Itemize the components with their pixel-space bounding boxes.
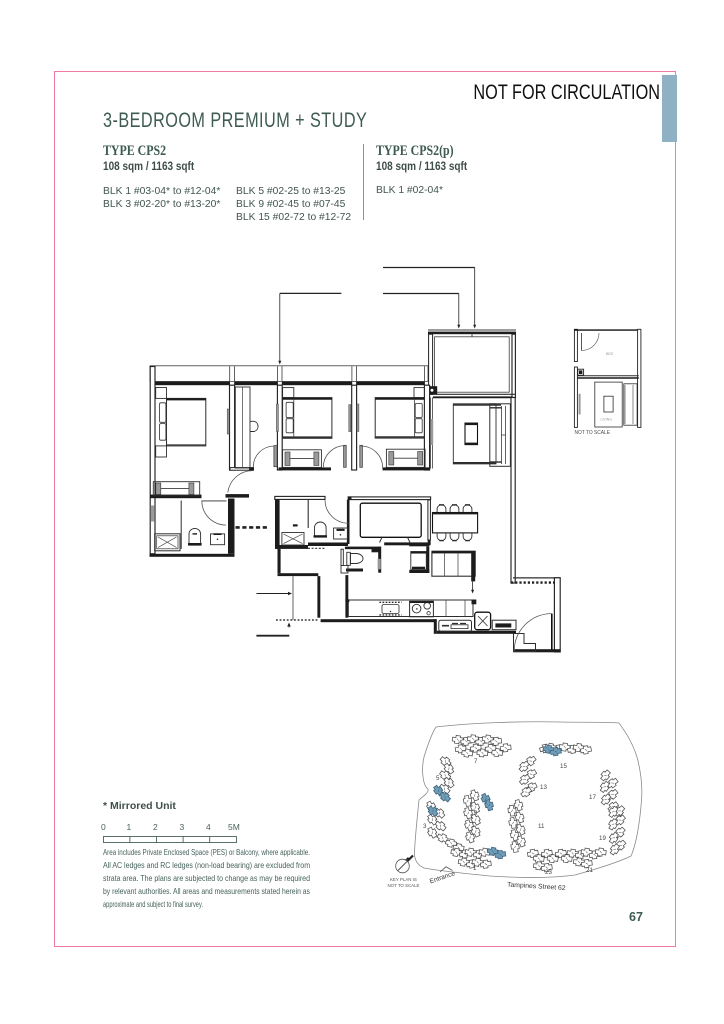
svg-text:BED: BED xyxy=(606,352,614,356)
svg-text:NOT TO SCALE: NOT TO SCALE xyxy=(388,883,420,888)
svg-text:KEY PLAN IS: KEY PLAN IS xyxy=(390,877,417,882)
svg-text:1: 1 xyxy=(473,865,477,872)
svg-text:5: 5 xyxy=(436,775,440,782)
svg-text:Tampines Street 62: Tampines Street 62 xyxy=(507,882,566,893)
svg-text:3: 3 xyxy=(423,823,427,830)
svg-text:11: 11 xyxy=(538,823,545,830)
svg-text:NOT TO SCALE: NOT TO SCALE xyxy=(575,430,611,436)
svg-text:13: 13 xyxy=(540,784,547,791)
svg-text:Entrance: Entrance xyxy=(429,870,457,885)
svg-text:9: 9 xyxy=(474,810,478,817)
svg-text:17: 17 xyxy=(589,794,596,801)
svg-text:15: 15 xyxy=(560,763,567,770)
svg-text:21: 21 xyxy=(586,867,593,874)
svg-text:7: 7 xyxy=(474,758,478,765)
svg-text:19: 19 xyxy=(599,835,606,842)
svg-text:23: 23 xyxy=(545,869,552,876)
svg-text:LIVING: LIVING xyxy=(601,418,613,422)
